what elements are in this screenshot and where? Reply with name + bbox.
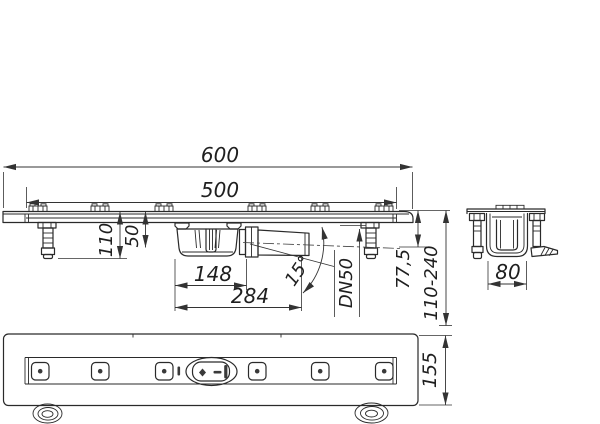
dim-label-outlet-projection: 284 [231, 284, 269, 308]
side-elevation-view [3, 204, 413, 259]
plan-left-foot [33, 404, 62, 423]
pipe-centerline [243, 243, 401, 249]
fixing-clip [375, 204, 393, 212]
drawing-canvas: 600 500 110 50 148 284 15° DN50 [0, 0, 600, 424]
plan-drain-outlet [178, 358, 238, 386]
right-support-foot [361, 223, 379, 259]
dimension-pipe-size: DN50 [335, 226, 367, 318]
dim-label-adjust-range: 110-240 [421, 245, 442, 320]
section-flange [467, 205, 545, 213]
fixing-clip [91, 204, 109, 212]
fixing-clip [155, 204, 173, 212]
fixing-clip [29, 204, 47, 212]
plan-view: 155 [4, 334, 453, 423]
plan-clip [312, 363, 330, 381]
dimension-install-height: 110 [58, 212, 127, 259]
drain-mark-diamond [199, 369, 206, 377]
plan-clip [156, 363, 174, 381]
left-support-foot [38, 223, 56, 259]
plan-clip [249, 363, 267, 381]
section-channel-body [487, 214, 528, 257]
dimension-body-width: 155 [419, 336, 452, 406]
dim-label-pipe-size: DN50 [336, 258, 357, 308]
fixing-clip [248, 204, 266, 212]
drain-trap-body [175, 223, 241, 256]
fixing-clip [311, 204, 329, 212]
dim-label-install-height: 110 [96, 223, 117, 257]
section-left-foot [470, 214, 485, 259]
plan-clips [32, 363, 394, 381]
dim-label-overall-length: 600 [201, 143, 239, 167]
dim-label-channel-depth: 50 [122, 225, 143, 248]
technical-drawing: 600 500 110 50 148 284 15° DN50 [0, 0, 600, 424]
dimension-section-width: 80 [488, 260, 527, 290]
drain-mark-minus [214, 371, 222, 374]
plan-clip [32, 363, 50, 381]
plan-clip [376, 363, 394, 381]
dimension-channel-depth: 50 [122, 212, 146, 248]
dim-label-trap-length: 148 [194, 262, 232, 286]
plan-outline [4, 334, 419, 406]
dimension-channel-length: 500 [27, 178, 397, 209]
dim-label-flange-height: 77,5 [393, 249, 414, 289]
dim-label-channel-length: 500 [201, 178, 239, 202]
dim-label-section-width: 80 [495, 260, 520, 284]
fixing-clips-row [29, 204, 393, 212]
channel-flange-profile [3, 212, 413, 223]
drain-mark-bar [224, 365, 227, 379]
section-right-foot [530, 214, 558, 257]
dim-label-body-width: 155 [419, 352, 441, 388]
plan-clip [92, 363, 110, 381]
cross-section-view: 80 [467, 205, 558, 290]
dimension-adjust-range: 110-240 [421, 211, 452, 326]
